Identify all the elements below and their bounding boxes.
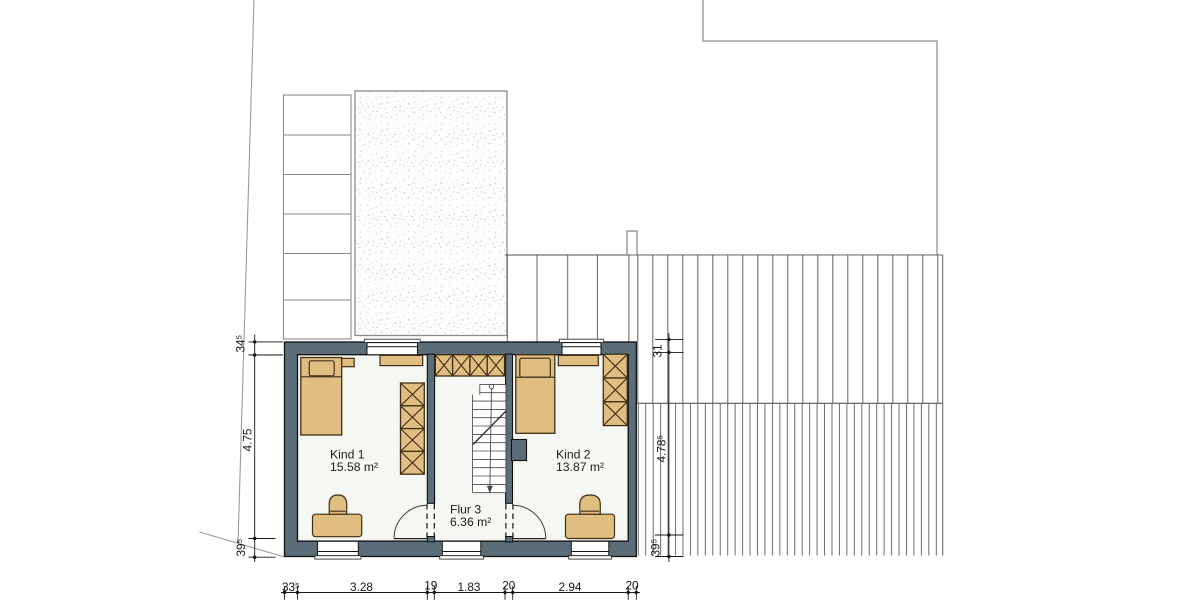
svg-text:20: 20 (502, 578, 516, 592)
svg-text:6.36 m²: 6.36 m² (450, 515, 491, 529)
svg-text:1.83: 1.83 (458, 580, 481, 594)
svg-text:4.75: 4.75 (241, 428, 255, 451)
svg-text:13.87 m²: 13.87 m² (556, 460, 604, 474)
svg-text:15.58 m²: 15.58 m² (330, 460, 378, 474)
svg-text:31: 31 (651, 344, 665, 357)
svg-text:19: 19 (424, 578, 437, 592)
svg-text:3.28: 3.28 (350, 580, 373, 594)
svg-text:20: 20 (625, 578, 639, 592)
svg-text:2.94: 2.94 (559, 580, 582, 594)
